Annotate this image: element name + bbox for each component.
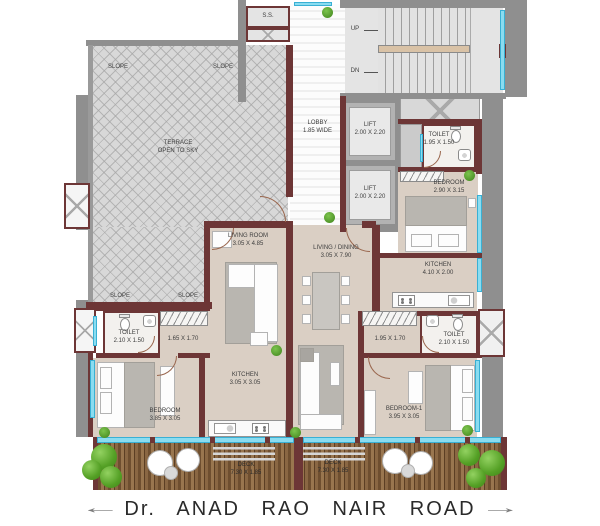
stair-right-band (505, 0, 527, 97)
deck-window-right (303, 437, 501, 443)
wardrobe-right (362, 311, 417, 326)
terrace-left-wall (88, 45, 93, 303)
pillow (100, 392, 112, 414)
side-cabinet (300, 348, 314, 362)
up-leader (364, 30, 378, 31)
staircase-landing-line (470, 8, 471, 94)
deck-left-label: DECK 7.30 X 1.85 (220, 462, 272, 478)
living-dining-label: LIVING / DINING 3.05 X 7.90 (305, 245, 367, 261)
duct-left-upper (64, 183, 90, 229)
ss-label: S.S. (246, 13, 290, 21)
bedroom-1-label: BEDROOM-1 3.95 X 3.05 (374, 406, 434, 422)
deck-dim: 7.30 X 1.85 (220, 470, 272, 478)
terrace-floor (90, 45, 288, 227)
floor-plan: TERRACE OPEN TO SKY SLOPE SLOPE SLOPE SL… (0, 0, 600, 526)
bedroom-dim: 3.85 X 3.05 (135, 416, 195, 424)
right-apt-top-wall (362, 221, 376, 228)
terrace-top-wall (86, 40, 244, 46)
toilet-name: TOILET (422, 132, 456, 140)
lift-name: LIFT (345, 122, 395, 130)
bedroom-top-bottom-wall (376, 253, 482, 258)
sink (448, 295, 470, 306)
bedside-table (468, 198, 476, 208)
toilet-right-label: TOILET 2.10 X 1.50 (430, 332, 478, 348)
toilet-top-right-wall (476, 119, 482, 174)
living-dim: 3.05 X 4.85 (217, 241, 279, 249)
wc-icon (453, 318, 463, 331)
top-unit-top-wall (398, 119, 482, 124)
lobby-name: LOBBY (291, 120, 344, 128)
living-name: LIVING ROOM (217, 233, 279, 241)
staircase-mid-landing (378, 45, 470, 53)
terrace-stub-wall (238, 0, 246, 102)
kitchen-left-label: KITCHEN 3.05 X 3.05 (214, 372, 276, 388)
road-name: Dr. ANAD RAO NAIR ROAD (124, 498, 475, 521)
plant (462, 425, 473, 436)
stair-top-wall (340, 0, 506, 8)
terrace-sub: OPEN TO SKY (128, 148, 228, 156)
right-band (482, 98, 503, 440)
dining-table (312, 272, 340, 330)
toilet-dim: 2.10 X 1.50 (105, 338, 153, 346)
bedroom-name: BEDROOM (135, 408, 195, 416)
deck-table (176, 448, 200, 472)
window-mullion (150, 437, 155, 443)
toilet-left-label: TOILET 2.10 X 1.50 (105, 330, 153, 346)
wardrobe-left (160, 311, 208, 326)
kitchen-right-window (477, 258, 482, 292)
bedroom-name: BEDROOM (420, 180, 478, 188)
deck-stool (401, 464, 415, 478)
pillow (100, 367, 112, 389)
toilet-name: TOILET (105, 330, 153, 338)
deck-right-label: DECK 7.30 X 1.85 (307, 460, 359, 476)
washbasin-icon (458, 149, 471, 161)
sofa (300, 414, 342, 430)
toilet-dim: 1.95 X 1.50 (422, 140, 456, 148)
bed-blanket (405, 196, 467, 226)
dining-chair (302, 314, 311, 324)
dn-leader (364, 72, 378, 73)
kitchen-name: KITCHEN (407, 262, 469, 270)
hob (252, 423, 269, 434)
unit-divider-wall (286, 221, 293, 443)
plant (99, 427, 110, 438)
plant (324, 212, 335, 223)
bedroom-kitchen-left-wall (199, 358, 205, 437)
slope-label-br: SLOPE (168, 293, 208, 301)
toilet-name: TOILET (430, 332, 478, 340)
bedroom-left-label: BEDROOM 3.85 X 3.05 (135, 408, 195, 424)
desk (408, 371, 423, 404)
road-label-row: ← Dr. ANAD RAO NAIR ROAD → (0, 494, 600, 524)
deck-divider-wall (294, 437, 303, 490)
lobby-label: LOBBY 1.85 WIDE (291, 120, 344, 136)
road-arrow-left-icon: ← (80, 500, 122, 518)
lift-dim: 2.00 X 2.20 (345, 194, 395, 202)
passage-left-bottom-wall (178, 353, 210, 358)
slope-label-bl: SLOPE (100, 293, 140, 301)
bedroom-left-window (90, 360, 95, 418)
pillow (411, 234, 432, 247)
living-dim: 3.05 X 7.90 (305, 253, 367, 261)
washbasin-icon (143, 315, 156, 327)
toilet-top-duct (400, 124, 422, 170)
kitchen-right-label: KITCHEN 4.10 X 2.00 (407, 262, 469, 278)
coffee-table (250, 332, 268, 346)
dn-label: DN (345, 68, 365, 76)
living-left-label: LIVING ROOM 3.05 X 4.85 (217, 233, 279, 249)
pillow (462, 369, 473, 393)
plant (322, 7, 333, 18)
deck-name: DECK (307, 460, 359, 468)
dining-chair (341, 276, 350, 286)
toilet-top-label: TOILET 1.95 X 1.50 (422, 132, 456, 148)
washbasin-icon (426, 315, 439, 327)
pillow (438, 234, 459, 247)
slope-label-tl: SLOPE (98, 64, 138, 72)
dining-chair (302, 276, 311, 286)
passage-right-label: 1.95 X 1.70 (364, 336, 416, 344)
living-left-top-wall (204, 221, 292, 228)
toilet-dim: 2.10 X 1.50 (430, 340, 478, 348)
living-name: LIVING / DINING (305, 245, 367, 253)
kitchen-dim: 4.10 X 2.00 (407, 270, 469, 278)
slope-label-tr: SLOPE (203, 64, 243, 72)
plant (271, 345, 282, 356)
kitchen-name: KITCHEN (214, 372, 276, 380)
lift-name: LIFT (345, 186, 395, 194)
pillow (462, 397, 473, 421)
dining-chair (302, 295, 311, 305)
kitchen-right-left-wall (372, 225, 380, 320)
deck-name: DECK (220, 462, 272, 470)
bedroom-top-label: BEDROOM 2.90 X 3.15 (420, 180, 478, 196)
ss-duct (246, 28, 290, 42)
bedroom-top-window (477, 195, 482, 253)
bedroom-name: BEDROOM-1 (374, 406, 434, 414)
deck-stool (164, 466, 178, 480)
terrace-label: TERRACE OPEN TO SKY (128, 140, 228, 156)
window-mullion (465, 437, 470, 443)
bedroom-1-window (475, 360, 480, 432)
road-arrow-right-icon: → (479, 500, 521, 518)
tree (466, 468, 486, 488)
lobby-floor (290, 4, 345, 228)
lift-dim: 2.00 X 2.20 (345, 130, 395, 138)
tree (82, 460, 102, 480)
plant (290, 427, 301, 438)
stair-window (500, 10, 505, 90)
dining-chair (341, 295, 350, 305)
up-label: UP (345, 26, 365, 34)
tv-unit (330, 362, 340, 386)
window-mullion (265, 437, 270, 443)
toilet-left-bottom-wall (96, 353, 160, 358)
tree (100, 466, 122, 488)
toilet-left-window (93, 316, 97, 346)
duct-right (478, 309, 505, 357)
lobby-top-window (294, 2, 332, 6)
hob (398, 295, 415, 306)
lift-1-label: LIFT 2.00 X 2.20 (345, 122, 395, 138)
lift-2-label: LIFT 2.00 X 2.20 (345, 186, 395, 202)
sink (214, 423, 236, 434)
dining-chair (341, 314, 350, 324)
window-mullion (355, 437, 360, 443)
lobby-dim: 1.85 WIDE (291, 128, 344, 136)
tree (458, 444, 480, 466)
kitchen-dim: 3.05 X 3.05 (214, 380, 276, 388)
passage-left-label: 1.65 X 1.70 (158, 336, 208, 344)
bedroom-dim: 2.90 X 3.15 (420, 188, 478, 196)
deck-bench (213, 447, 275, 462)
bedroom-dim: 3.95 X 3.05 (374, 414, 434, 422)
terrace-name: TERRACE (128, 140, 228, 148)
deck-dim: 7.30 X 1.85 (307, 468, 359, 476)
sofa (254, 264, 278, 342)
window-mullion (415, 437, 420, 443)
lobby-lift-wall (340, 96, 346, 232)
window-mullion (210, 437, 215, 443)
